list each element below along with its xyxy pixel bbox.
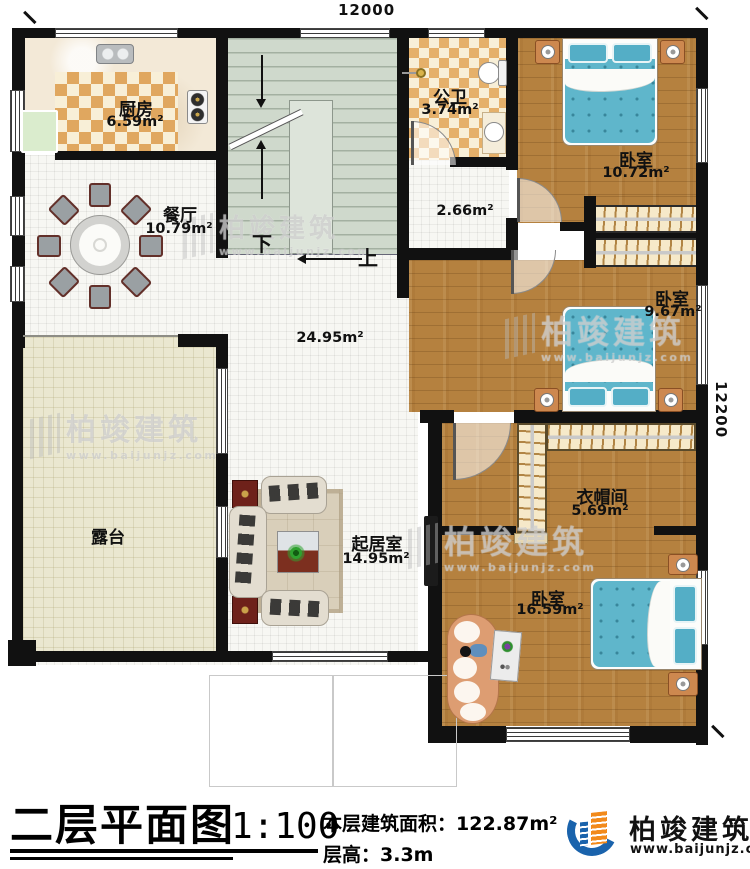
floor-area-line: 本层建筑面积：122.87m²: [323, 809, 557, 836]
dining-chair: [89, 285, 111, 309]
nightstand: [658, 388, 683, 412]
lamp-icon: [541, 45, 555, 59]
stair-up-label: 上: [358, 242, 378, 271]
sofa-left: [229, 506, 267, 598]
floor-height-value: 3.3m: [380, 844, 433, 866]
window: [696, 285, 708, 385]
tv-panel: [424, 516, 438, 586]
sofa-top: [261, 476, 327, 514]
bedroom2-door-leaf: [511, 250, 514, 294]
tv-cabinet: [232, 480, 258, 508]
wall: [12, 38, 25, 90]
logo-building-orange-icon: [591, 811, 607, 845]
floor-height-label: 层高：: [323, 844, 380, 866]
wall: [55, 151, 217, 160]
stair-up-arrow-stem: [306, 258, 362, 260]
bed2: [562, 306, 656, 412]
bed2-pillow-left: [568, 387, 607, 407]
flower-vase-icon: [500, 640, 514, 654]
lounge-cushion: [453, 657, 477, 679]
lounge-cushion: [454, 621, 480, 643]
wall: [506, 38, 518, 170]
window: [216, 368, 228, 454]
lower-floor-outline: [333, 675, 457, 787]
stair-arrow-up-icon: [256, 140, 266, 149]
kitchen-area: 6.59m²: [106, 114, 163, 130]
dining-table-center: [93, 238, 107, 252]
bedroom1-door-leaf: [517, 178, 520, 222]
wall: [216, 28, 228, 258]
dining-chair: [120, 266, 153, 299]
title-underline-thick: [10, 849, 318, 853]
terrace-wall-bottom: [12, 651, 228, 662]
dining-chair: [48, 266, 81, 299]
wall: [216, 454, 228, 506]
stair-arrow-stem-top: [261, 55, 263, 99]
lamp-icon: [540, 393, 554, 407]
lamp-icon: [664, 393, 678, 407]
dining-set: [45, 191, 155, 301]
hall-area: 2.66m²: [436, 203, 493, 219]
title-underline-thin: [10, 857, 233, 860]
wall: [397, 248, 509, 260]
desk-items-icon: [500, 664, 510, 671]
plant-icon: [287, 544, 305, 562]
bath-door-leaf: [411, 121, 414, 165]
lounge-cushion: [454, 681, 480, 703]
lamp-icon: [676, 558, 690, 572]
wall: [178, 28, 300, 38]
person-head: [460, 646, 471, 657]
dimension-tick: [711, 725, 724, 738]
stair-landing: [289, 100, 333, 254]
bed1: [562, 38, 658, 146]
stair-down-label: 下: [252, 228, 272, 257]
logo-building-blue-icon: [580, 822, 588, 847]
window: [272, 651, 388, 662]
cloakroom-door-leaf: [453, 423, 456, 480]
wall: [390, 28, 428, 38]
wall: [584, 196, 596, 268]
sofa-cushions: [270, 599, 323, 618]
dining-chair: [89, 183, 111, 207]
wall: [216, 651, 272, 662]
lamp-icon: [666, 45, 680, 59]
closet-strip-bottom: [591, 238, 700, 267]
logo-site: www.baijunjz.com: [630, 842, 750, 857]
dimension-tick: [23, 11, 36, 24]
terrace-floor: [23, 337, 216, 661]
wall: [450, 157, 512, 167]
floor-area-value: 122.87m²: [456, 813, 557, 835]
fridge: [21, 110, 58, 153]
bed3-pillow-top: [673, 585, 697, 623]
toilet-tank: [498, 60, 507, 86]
floor-area-label: 本层建筑面积：: [323, 813, 456, 835]
shower-icon: [416, 68, 426, 78]
dimension-right: 12200: [712, 381, 730, 427]
cloakroom-wardrobe-left: [517, 423, 547, 533]
stair-up-arrow-icon: [297, 254, 306, 264]
closet-strip-top: [591, 205, 700, 233]
wall: [12, 152, 25, 196]
window: [55, 28, 178, 38]
lower-floor-outline: [209, 675, 333, 787]
coffee-table: [277, 531, 319, 573]
kitchen-sink: [96, 44, 134, 64]
sofa-bottom: [261, 590, 329, 626]
person-body: [470, 644, 487, 657]
nightstand: [534, 388, 559, 412]
open-area-label: 24.95m²: [296, 330, 363, 346]
wall: [630, 726, 708, 743]
terrace-label: 露台: [91, 523, 125, 548]
sofa-cushions: [234, 515, 255, 590]
kitchen-rug: [55, 72, 178, 152]
cloakroom-wardrobe-top: [546, 423, 696, 451]
stair-arrow-stem-bottom: [261, 149, 263, 199]
toilet-icon: [478, 62, 500, 84]
cloakroom-area: 5.69m²: [571, 503, 628, 519]
nightstand: [660, 40, 685, 64]
window: [300, 28, 390, 38]
window: [506, 727, 630, 742]
bedroom3-area: 16.59m²: [516, 602, 583, 618]
bed1-pillow-right: [612, 43, 652, 63]
stair-arrow-down-icon: [256, 99, 266, 108]
window: [428, 28, 485, 38]
window: [10, 266, 25, 302]
window: [216, 506, 228, 558]
floor-plan-page: 柏竣建筑 www.baijunjz.com 柏竣建筑 www.baijunjz.…: [0, 0, 750, 869]
dining-table: [70, 215, 130, 275]
wall: [178, 334, 218, 347]
company-logo: 柏竣建筑 www.baijunjz.com: [567, 804, 747, 860]
window: [696, 88, 708, 163]
sofa-cushions: [269, 482, 322, 502]
wall: [654, 526, 696, 535]
cloakroom-bench: [514, 533, 548, 544]
lamp-icon: [676, 677, 690, 691]
bed2-pillow-right: [611, 387, 650, 407]
wall: [485, 28, 708, 38]
terrace-corner-block: [8, 640, 36, 666]
bedroom1-area: 10.72m²: [602, 165, 669, 181]
wall: [420, 410, 454, 423]
bed1-pillow-left: [568, 43, 608, 63]
sink-icon: [484, 122, 504, 142]
dining-chair: [48, 194, 81, 227]
bed3-pillow-bottom: [673, 627, 697, 665]
dining-area: 10.79m²: [145, 221, 212, 237]
shower-arm: [402, 72, 417, 74]
tv-cabinet: [232, 596, 258, 624]
desk: [490, 630, 522, 682]
window: [10, 196, 25, 236]
terrace-wall-left: [12, 348, 23, 662]
nightstand: [668, 672, 698, 696]
wall: [216, 334, 228, 368]
terrace-parapet: [23, 335, 180, 337]
nightstand: [668, 554, 698, 575]
bath-area: 3.74m²: [421, 102, 478, 118]
living-area: 14.95m²: [342, 551, 409, 567]
bedroom2-area: 9.67m²: [644, 304, 701, 320]
wall: [12, 302, 25, 348]
page-title: 二层平面图: [10, 791, 235, 853]
bed3: [590, 578, 702, 670]
wall: [442, 526, 516, 535]
dining-chair: [139, 235, 163, 257]
dining-chair: [37, 235, 61, 257]
wall: [216, 558, 228, 662]
lounge-cushion: [460, 703, 486, 721]
wall: [12, 236, 25, 266]
dimension-top: 12000: [338, 1, 395, 19]
dimension-tick: [695, 7, 708, 20]
floor-height-line: 层高：3.3m: [323, 840, 433, 867]
stove-icon: [187, 90, 208, 124]
nightstand: [535, 40, 560, 64]
wall: [12, 28, 55, 38]
